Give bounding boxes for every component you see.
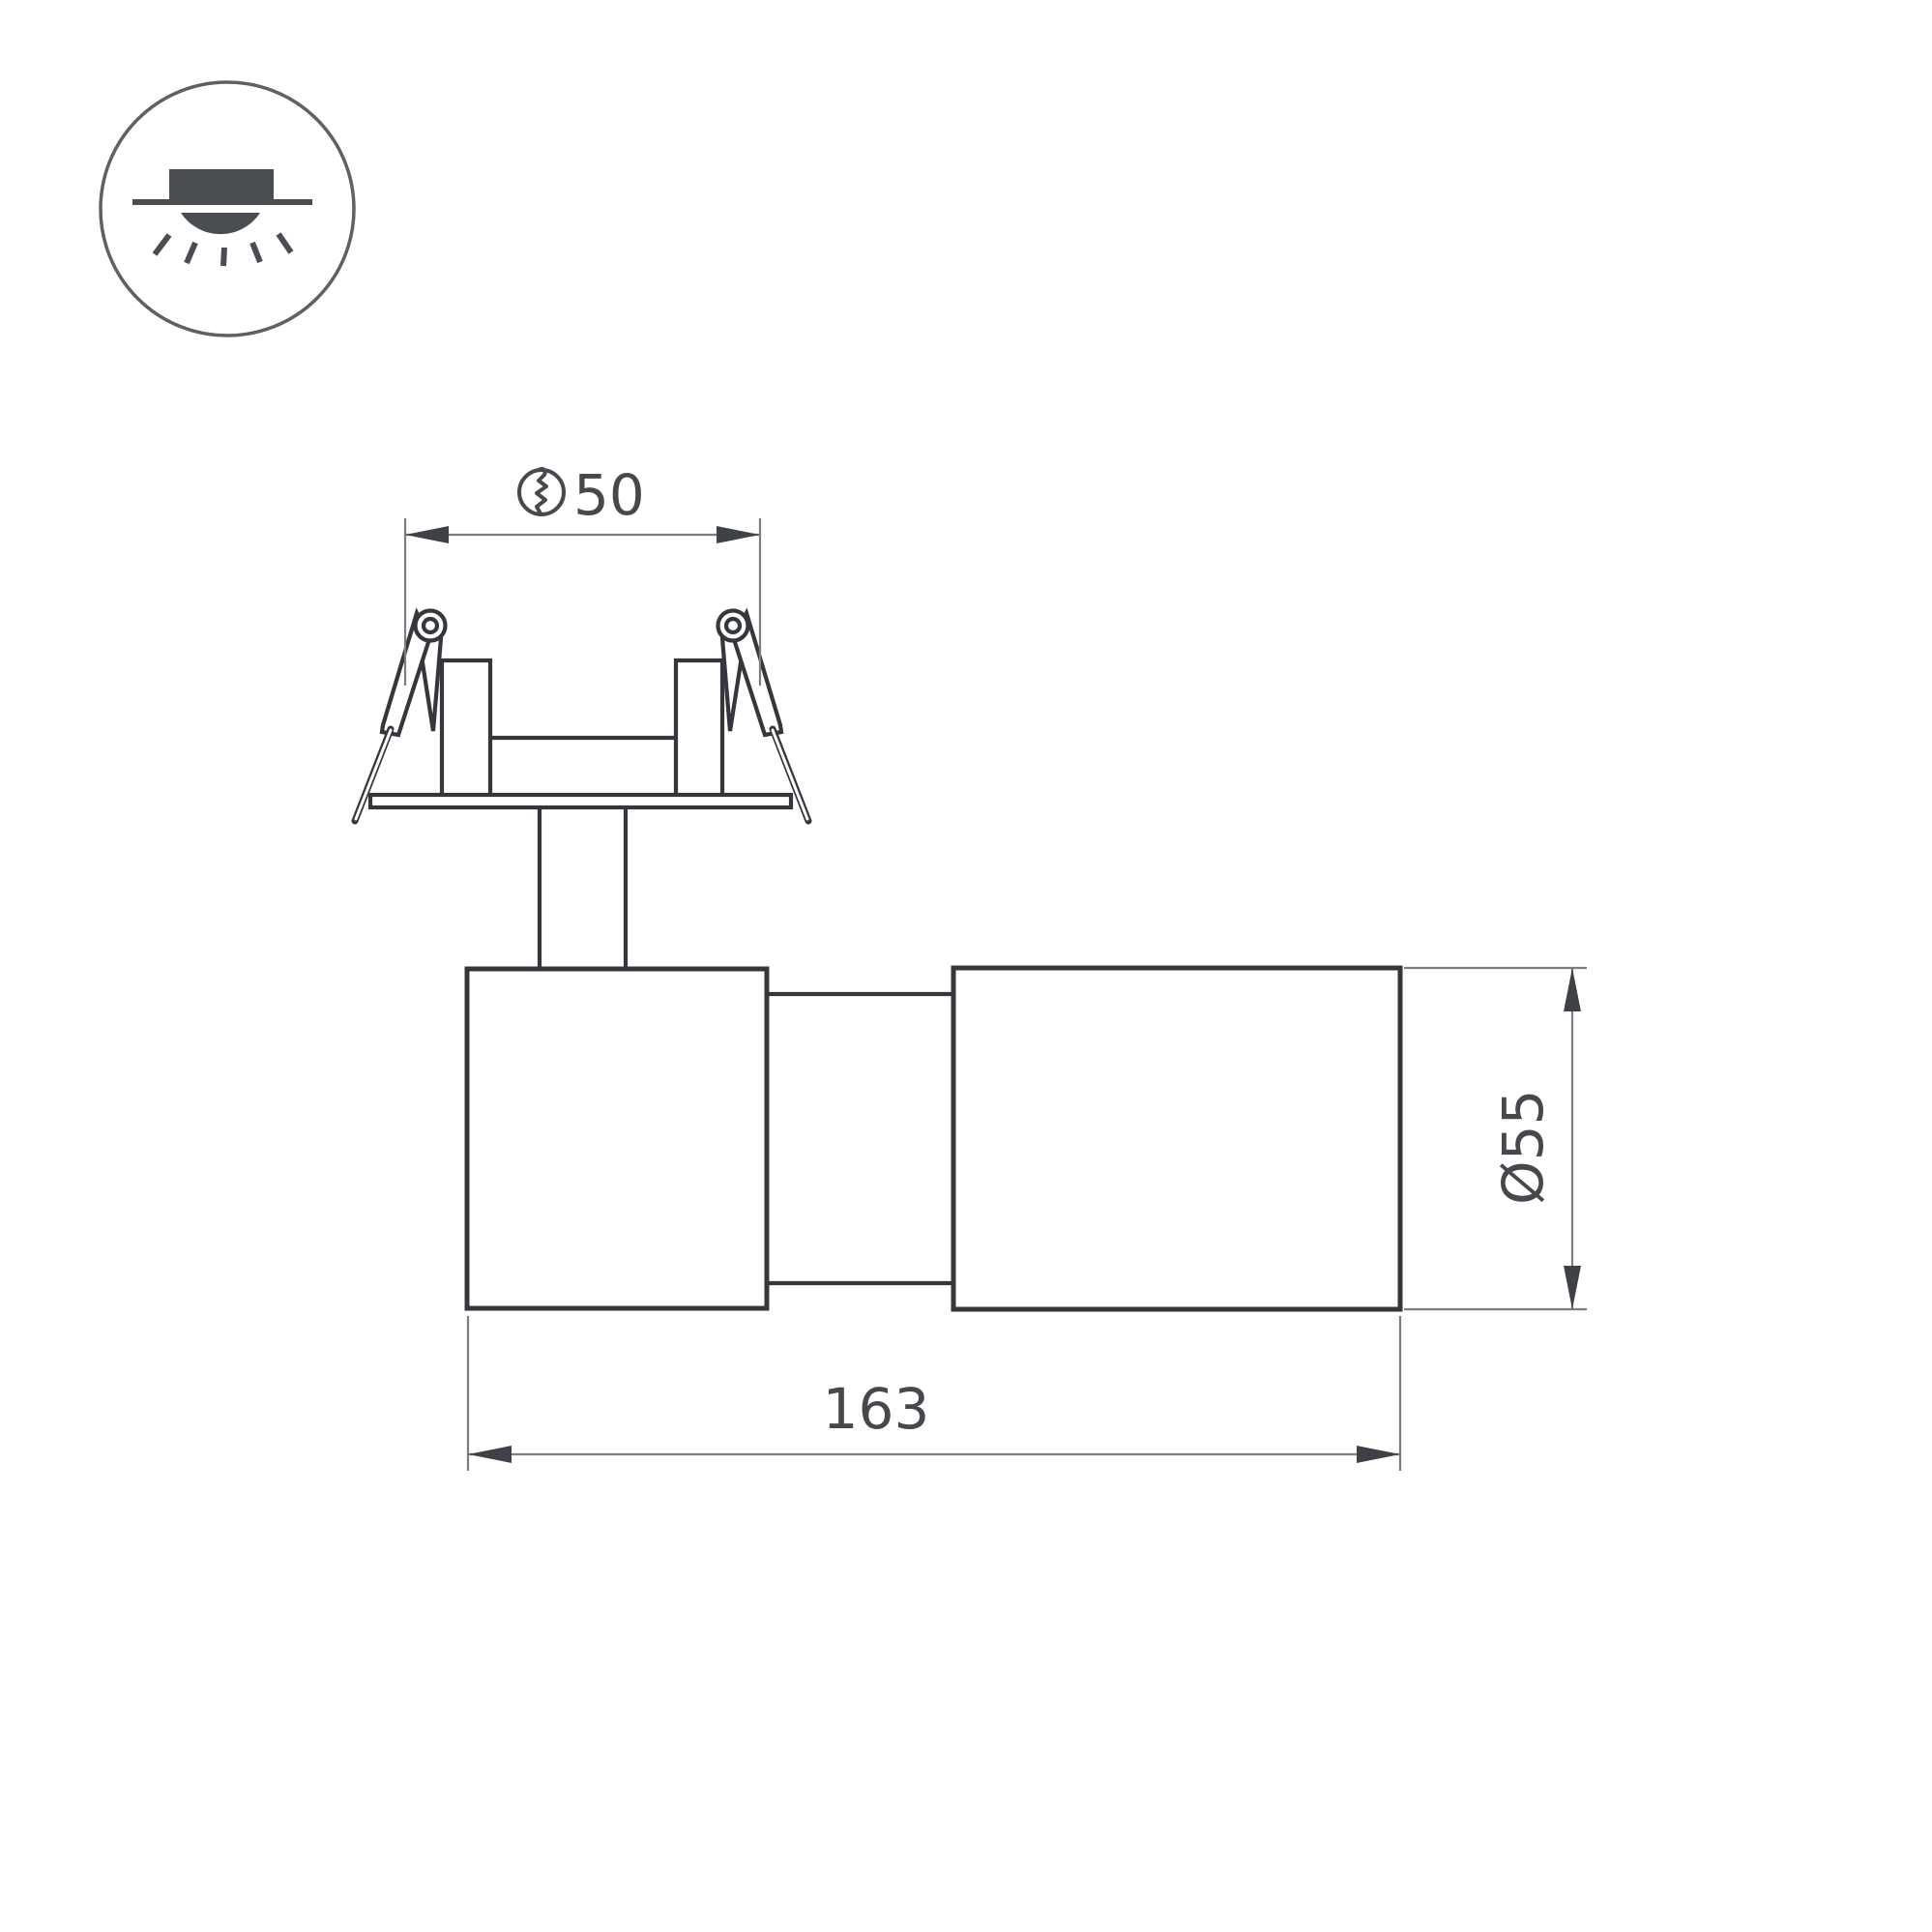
stem-lines — [540, 807, 626, 969]
dim-length: 163 — [468, 1316, 1400, 1471]
body-neck — [767, 994, 953, 1283]
clip-pivot — [718, 611, 748, 641]
body-rear-block — [467, 969, 767, 1308]
dim-diameter: Ø55 — [1404, 968, 1587, 1309]
stem — [540, 807, 626, 969]
spring-clip-left — [355, 611, 446, 822]
cutout-dim-label: 50 — [573, 462, 645, 528]
arrowhead-top — [1564, 968, 1581, 1011]
hole-cutout-icon — [519, 469, 564, 514]
light-ray — [187, 243, 195, 263]
diameter-dim-label: Ø55 — [1490, 1090, 1556, 1205]
arrowhead-right — [1357, 1446, 1400, 1463]
recessed-downlight-icon — [101, 82, 354, 336]
arrowhead-left — [405, 526, 449, 543]
mount-channel — [442, 660, 722, 795]
technical-drawing-page: 50 163 Ø55 — [0, 0, 1932, 1932]
light-ray — [155, 235, 169, 254]
light-ray — [278, 234, 291, 252]
lamp-dome — [181, 213, 260, 234]
dim-cutout: 50 — [405, 462, 760, 686]
arrowhead-right — [717, 526, 760, 543]
clip-pivot — [416, 611, 446, 641]
mounting-bracket-view — [355, 611, 808, 822]
body-front-block — [953, 968, 1400, 1309]
icon-circle — [101, 82, 354, 336]
mount-flange — [370, 795, 791, 807]
lamp-housing — [169, 169, 274, 201]
arrowhead-bottom — [1564, 1266, 1581, 1309]
light-ray — [252, 243, 260, 262]
fixture-body-view — [467, 968, 1400, 1309]
length-dim-label: 163 — [823, 1376, 930, 1442]
ceiling-line — [132, 199, 312, 205]
arrowhead-left — [468, 1446, 512, 1463]
light-ray — [223, 248, 224, 266]
spring-clip-right — [718, 611, 809, 822]
luminaire-dimension-drawing: 50 163 Ø55 — [0, 0, 1932, 1932]
